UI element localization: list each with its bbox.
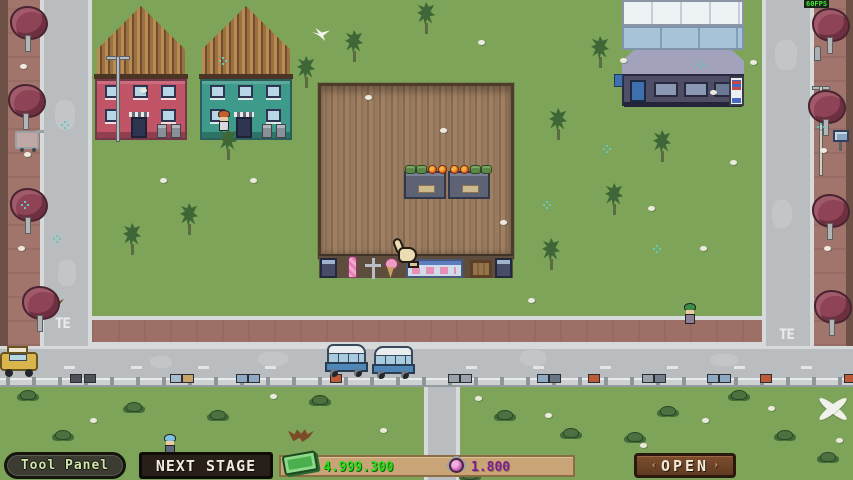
bush-icon	[55, 430, 71, 440]
pine-tree-icon	[179, 203, 199, 235]
gem-icon	[449, 458, 464, 473]
bush-icon	[210, 410, 226, 420]
stone-icon	[475, 396, 482, 401]
stone-icon	[702, 418, 709, 423]
stone-icon	[270, 394, 277, 399]
cursor-hand-icon	[393, 238, 421, 270]
stone-icon	[380, 428, 387, 433]
bush-icon	[820, 452, 836, 462]
bush-icon	[563, 428, 579, 438]
pine-tree-icon	[604, 183, 624, 215]
fps-counter: 60FPS	[804, 0, 829, 8]
stone-icon	[820, 148, 827, 153]
pine-tree-icon	[590, 36, 610, 68]
open-button-left-deco: ‹	[651, 460, 657, 471]
open-shop-button[interactable]: ‹ OPEN ›	[634, 453, 736, 478]
stone-icon	[750, 60, 757, 65]
bush-icon	[777, 430, 793, 440]
stone-icon	[700, 246, 707, 251]
stone-icon	[250, 178, 257, 183]
stone-icon	[824, 246, 831, 251]
open-button-label: OPEN	[661, 457, 709, 475]
flower-icon	[56, 238, 58, 240]
stone-icon	[640, 443, 647, 448]
cash-icon	[282, 450, 319, 476]
next-stage-button[interactable]: NEXT STAGE	[139, 452, 273, 479]
stone-icon	[365, 95, 372, 100]
game-viewport: TE TE	[0, 0, 853, 480]
stone-icon	[18, 246, 25, 251]
flower-icon	[820, 126, 822, 128]
maroon-tree-icon	[8, 84, 42, 130]
stone-icon	[648, 206, 655, 211]
stone-icon	[836, 438, 843, 443]
bush-icon	[660, 406, 676, 416]
stone-icon	[545, 413, 552, 418]
stone-icon	[90, 418, 97, 423]
maroon-tree-icon	[814, 290, 848, 336]
stone-icon	[140, 88, 147, 93]
flower-icon	[700, 64, 702, 66]
stone-icon	[440, 128, 447, 133]
stone-icon	[20, 64, 27, 69]
bush-icon	[20, 390, 36, 400]
stone-icon	[620, 58, 627, 63]
bush-icon	[497, 410, 513, 420]
bush-icon	[731, 390, 747, 400]
pine-tree-icon	[122, 223, 142, 255]
money-value: 4.999.300	[323, 460, 393, 475]
pine-tree-icon	[218, 128, 238, 160]
bush-icon	[627, 432, 643, 442]
stone-icon	[478, 40, 485, 45]
currency-bar: 4.999.300 1.800	[279, 455, 575, 477]
flower-icon	[656, 248, 658, 250]
stone-icon	[710, 90, 717, 95]
maroon-tree-icon	[10, 6, 44, 52]
flower-icon	[546, 204, 548, 206]
flower-icon	[606, 148, 608, 150]
bush-icon	[126, 402, 142, 412]
open-button-right-deco: ›	[713, 460, 719, 471]
stone-icon	[500, 220, 507, 225]
flower-icon	[222, 60, 224, 62]
stone-icon	[24, 152, 31, 157]
stone-icon	[160, 178, 167, 183]
maroon-tree-icon	[22, 286, 56, 332]
vegetation-layer	[0, 0, 853, 480]
bush-icon	[312, 395, 328, 405]
maroon-tree-icon	[812, 194, 846, 240]
maroon-tree-icon	[812, 8, 846, 54]
tool-panel-button[interactable]: Tool Panel	[4, 452, 126, 479]
flower-icon	[64, 124, 66, 126]
pine-tree-icon	[344, 30, 364, 62]
stone-icon	[528, 298, 535, 303]
flower-icon	[24, 204, 26, 206]
pine-tree-icon	[296, 56, 316, 88]
stone-icon	[768, 406, 775, 411]
pine-tree-icon	[548, 108, 568, 140]
hearts-value: 1.800	[471, 460, 510, 475]
maroon-tree-icon	[808, 90, 842, 136]
pine-tree-icon	[416, 2, 436, 34]
pine-tree-icon	[541, 238, 561, 270]
pine-tree-icon	[652, 130, 672, 162]
maroon-tree-icon	[10, 188, 44, 234]
stone-icon	[730, 160, 737, 165]
